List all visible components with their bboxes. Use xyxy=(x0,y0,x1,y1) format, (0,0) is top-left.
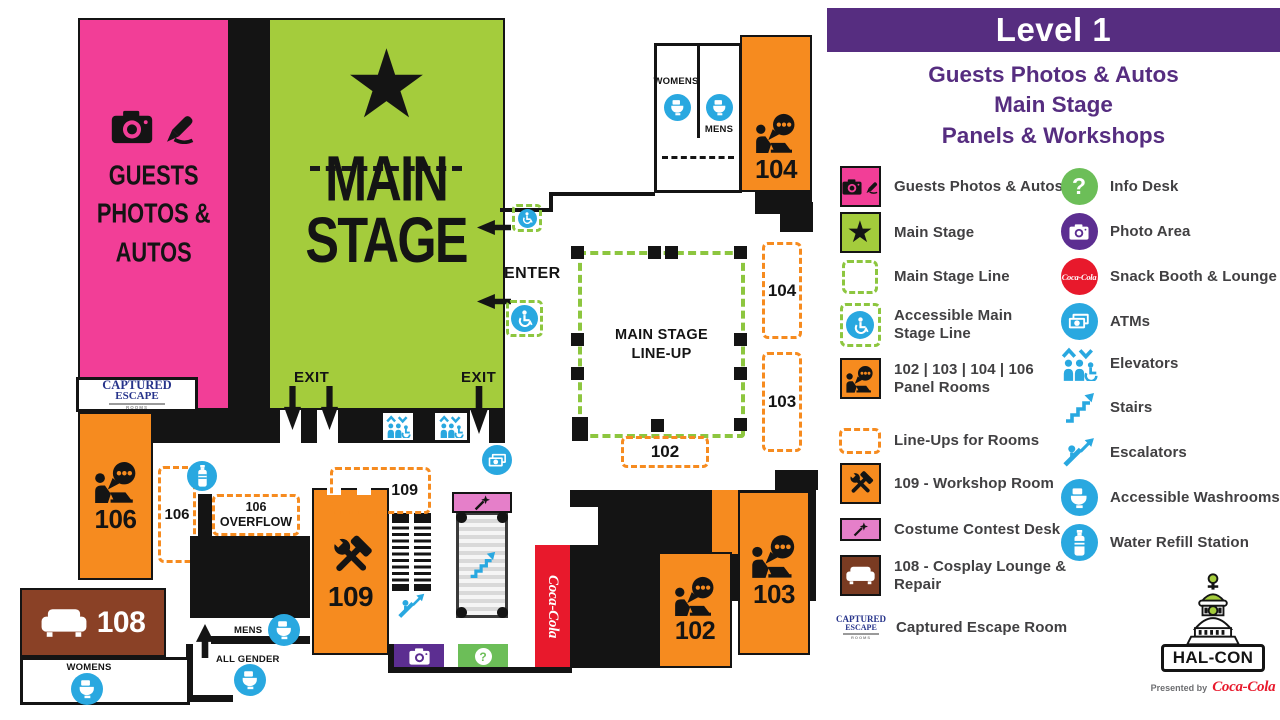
wall xyxy=(190,536,310,618)
stairs-icon xyxy=(1063,392,1095,424)
room-106-label: 106 xyxy=(95,506,137,532)
wall xyxy=(551,192,655,196)
room-104-label: 104 xyxy=(755,156,797,182)
exit-arrow-icon xyxy=(470,386,488,434)
escalator-belt xyxy=(414,513,431,591)
wall xyxy=(230,18,268,443)
water-refill-marker xyxy=(187,461,217,491)
star-icon: ★ xyxy=(847,218,874,248)
camera-icon xyxy=(409,648,430,665)
wheelchair-icon xyxy=(516,310,533,327)
elevator-box xyxy=(380,410,416,443)
question-icon: ? xyxy=(1061,168,1098,205)
room-103: 103 xyxy=(738,491,810,655)
presented-by-label: Presented by xyxy=(1151,683,1208,693)
coca-cola-script: Coca-Cola xyxy=(1062,272,1097,282)
lineup-106-overflow: 106 OVERFLOW xyxy=(212,494,300,536)
legend-item-lineups: Line-Ups for Rooms xyxy=(838,428,1039,454)
womens-washroom-label: WOMENS xyxy=(59,662,119,673)
couch-icon xyxy=(846,566,875,585)
room-106: 106 xyxy=(78,412,153,580)
level-subtitle: Guests Photos & Autos Main Stage Panels … xyxy=(827,60,1280,151)
legend-label: ATMs xyxy=(1110,313,1150,331)
room-102-label: 102 xyxy=(675,619,715,644)
legend-item-costume-desk: Costume Contest Desk xyxy=(838,518,1060,541)
main-stage-swatch: ★ xyxy=(840,212,881,253)
pillar xyxy=(571,367,584,380)
main-stage-area: ★ MAIN STAGE EXIT EXIT xyxy=(268,18,505,410)
floor-map-page: GUESTS PHOTOS & AUTOS ★ MAIN STAGE EXIT … xyxy=(0,0,1280,720)
legend-item-captured-escape: CAPTURED ESCAPE ROOMS Captured Escape Ro… xyxy=(838,615,1067,640)
wall xyxy=(780,202,813,232)
legend-item-cosplay-lounge: 108 - Cosplay Lounge & Repair xyxy=(838,555,1066,596)
legend-item-main-stage-line: Main Stage Line xyxy=(838,260,1010,294)
pillar xyxy=(648,246,661,259)
camera-icon xyxy=(111,110,153,144)
legend-item-accessible-washrooms: Accessible Washrooms xyxy=(1060,479,1280,516)
pillar xyxy=(456,607,467,618)
legend-item-accessible-line: Accessible Main Stage Line xyxy=(838,303,1012,347)
exit-arrow-icon xyxy=(321,386,338,430)
panel-room-icon xyxy=(845,365,875,393)
legend-item-atms: ATMs xyxy=(1060,303,1150,340)
wand-icon xyxy=(474,495,490,511)
toilet-marker xyxy=(268,614,300,646)
question-icon: ? xyxy=(475,648,492,665)
legend-label: 102 | 103 | 104 | 106 Panel Rooms xyxy=(894,361,1034,396)
escalator-icon xyxy=(1063,436,1096,469)
camera-icon xyxy=(1069,224,1089,240)
panel-room-icon xyxy=(754,113,798,153)
legend-label: Guests Photos & Autos xyxy=(894,178,1063,196)
autograph-icon xyxy=(864,180,879,194)
camera-icon xyxy=(842,179,862,195)
legend-item-stairs: Stairs xyxy=(1060,392,1152,424)
legend-item-workshop: 109 - Workshop Room xyxy=(838,463,1054,504)
toilet-icon xyxy=(1068,487,1090,509)
legend-label: Photo Area xyxy=(1110,223,1190,241)
legend-label: Main Stage xyxy=(894,224,974,242)
panel-rooms-swatch xyxy=(840,358,881,399)
costume-contest-desk xyxy=(452,492,512,513)
main-stage-label: MAIN STAGE xyxy=(306,149,467,272)
room-108: 108 xyxy=(20,588,166,657)
halcon-badge: HAL-CON xyxy=(1161,644,1265,672)
coca-cola-script: Coca-Cola xyxy=(544,575,561,638)
level-banner: Level 1 xyxy=(827,8,1280,52)
level-title: Level 1 xyxy=(996,11,1111,49)
womens-washroom-label: WOMENS xyxy=(653,76,699,87)
elevator-icon xyxy=(438,415,464,438)
legend-label: 108 - Cosplay Lounge & Repair xyxy=(894,558,1066,593)
workshop-swatch xyxy=(840,463,881,504)
escalator-icon xyxy=(397,592,427,620)
halcon-tower-icon xyxy=(1180,572,1246,650)
atm-cash-icon xyxy=(1068,313,1090,330)
room-103-entry xyxy=(712,490,738,554)
wall xyxy=(570,545,663,668)
washrooms-top: WOMENS MENS xyxy=(654,43,742,193)
enter-arrow-icon xyxy=(477,220,511,235)
legend-item-main-stage: ★ Main Stage xyxy=(838,212,974,253)
toilet-icon xyxy=(77,679,97,699)
water-bottle-icon xyxy=(196,465,209,487)
toilet-icon xyxy=(711,99,728,116)
accessible-line-marker xyxy=(512,204,542,232)
cosplay-lounge-swatch xyxy=(840,555,881,596)
toilet-marker xyxy=(71,673,103,705)
legend-label: Accessible Washrooms xyxy=(1110,489,1280,507)
legend-label: Main Stage Line xyxy=(894,268,1010,286)
photo-area-booth xyxy=(394,644,444,669)
mens-washroom-label: MENS xyxy=(234,625,262,636)
escalators-area xyxy=(392,513,431,591)
legend-label: Info Desk xyxy=(1110,178,1178,196)
pillar xyxy=(651,419,664,432)
enter-label: ENTER xyxy=(504,265,561,283)
guests-photos-autos-swatch xyxy=(840,166,881,207)
mens-washroom-label: MENS xyxy=(699,124,739,135)
workshop-tools-icon xyxy=(846,469,875,498)
costume-desk-swatch xyxy=(840,518,881,541)
legend-label: Water Refill Station xyxy=(1110,534,1249,552)
pillar xyxy=(571,246,584,259)
toilet-icon xyxy=(274,620,294,640)
room-108-label: 108 xyxy=(97,608,146,638)
legend-label: Snack Booth & Lounge xyxy=(1110,268,1277,286)
pillar xyxy=(456,512,467,523)
legend-item-photo-area: Photo Area xyxy=(1060,213,1190,250)
workshop-tools-icon xyxy=(327,532,375,580)
panel-room-icon xyxy=(750,534,798,578)
guests-area-label: GUESTS PHOTOS & AUTOS xyxy=(97,156,211,272)
corridor xyxy=(570,507,598,547)
legend-item-panel-rooms: 102 | 103 | 104 | 106 Panel Rooms xyxy=(838,358,1034,399)
legend-item-elevators: Elevators xyxy=(1060,347,1178,381)
pillar xyxy=(571,333,584,346)
legend-item-guests-photos-autos: Guests Photos & Autos xyxy=(838,166,1063,207)
accessible-line-swatch xyxy=(840,303,881,347)
toilet-marker xyxy=(234,664,266,696)
wheelchair-icon xyxy=(521,212,533,224)
toilet-marker xyxy=(664,94,691,121)
panel-room-icon xyxy=(673,576,717,616)
panel-room-icon xyxy=(93,461,139,503)
pillar xyxy=(734,367,747,380)
captured-escape-logo: CAPTURED ESCAPE ROOMS xyxy=(102,379,171,411)
elevator-icon xyxy=(385,415,411,438)
lineup-room-104: 104 xyxy=(762,242,802,339)
toilet-icon xyxy=(240,670,260,690)
wand-icon xyxy=(853,522,868,537)
escalator-belt xyxy=(392,513,409,591)
guests-icons xyxy=(111,110,197,144)
legend-item-water-refill: Water Refill Station xyxy=(1060,524,1249,561)
toilet-marker xyxy=(706,94,733,121)
captured-escape-logo: CAPTURED ESCAPE ROOMS xyxy=(838,615,884,640)
pillar xyxy=(665,246,678,259)
legend-label: Elevators xyxy=(1110,355,1178,373)
main-stage-lineup-label: MAIN STAGE LINE-UP xyxy=(615,326,708,364)
info-desk-booth: ? xyxy=(458,644,508,669)
main-stage-line-swatch xyxy=(842,260,878,294)
snack-booth-banner: Coca-Cola xyxy=(535,545,570,668)
lineup-room-109: 109 xyxy=(330,467,431,514)
pillar xyxy=(734,418,747,431)
legend-label: Escalators xyxy=(1110,444,1187,462)
water-bottle-icon xyxy=(1072,530,1087,556)
legend-label: Accessible Main Stage Line xyxy=(894,307,1012,342)
legend-item-escalators: Escalators xyxy=(1060,436,1187,469)
star-icon: ★ xyxy=(344,38,429,133)
legend-label: Costume Contest Desk xyxy=(894,521,1060,539)
room-103-label: 103 xyxy=(753,581,795,607)
atm-marker xyxy=(482,445,512,475)
legend-item-snack-booth: Coca-Cola Snack Booth & Lounge xyxy=(1060,258,1277,295)
womens-washroom-bottom: WOMENS xyxy=(20,657,190,705)
main-stage-lineup-area: MAIN STAGE LINE-UP xyxy=(578,251,745,438)
wall xyxy=(775,470,818,490)
autograph-icon xyxy=(161,111,197,144)
wall xyxy=(186,695,233,702)
exit-arrow-icon xyxy=(284,386,301,430)
door-dashed-line xyxy=(662,156,734,159)
legend-label: Line-Ups for Rooms xyxy=(894,432,1039,450)
room-102: 102 xyxy=(658,552,732,668)
legend-label: Stairs xyxy=(1110,399,1152,417)
elevator-box xyxy=(432,410,470,443)
legend-item-info-desk: ? Info Desk xyxy=(1060,168,1178,205)
legend-label: Captured Escape Room xyxy=(896,619,1067,637)
accessible-line-marker xyxy=(506,300,543,337)
halcon-logo: HAL-CON Presented by Coca-Cola xyxy=(1146,572,1280,696)
lineup-room-102: 102 xyxy=(621,436,709,468)
pillar xyxy=(497,607,508,618)
presented-by-row: Presented by Coca-Cola xyxy=(1151,679,1276,696)
lineup-room-103: 103 xyxy=(762,352,802,452)
pillar xyxy=(734,246,747,259)
room-104: 104 xyxy=(740,35,812,192)
wall xyxy=(388,667,572,673)
pillar xyxy=(734,333,747,346)
captured-escape-room: CAPTURED ESCAPE ROOMS xyxy=(76,377,198,412)
pillar xyxy=(572,417,588,441)
exit-label: EXIT xyxy=(294,369,329,386)
entry-arrow-icon xyxy=(196,624,214,658)
coca-cola-script: Coca-Cola xyxy=(1212,679,1275,696)
stairs-icon xyxy=(468,551,496,579)
room-109-label: 109 xyxy=(328,583,373,611)
couch-icon xyxy=(41,608,87,638)
pillar xyxy=(497,512,508,523)
lineups-swatch xyxy=(839,428,881,454)
stairs-area xyxy=(456,512,508,618)
exit-label: EXIT xyxy=(461,369,496,386)
guests-photos-autos-area: GUESTS PHOTOS & AUTOS xyxy=(78,18,230,410)
toilet-icon xyxy=(669,99,686,116)
wheelchair-icon xyxy=(852,317,869,334)
elevator-icon xyxy=(1060,347,1098,381)
legend-label: 109 - Workshop Room xyxy=(894,475,1054,493)
atm-cash-icon xyxy=(488,453,507,468)
